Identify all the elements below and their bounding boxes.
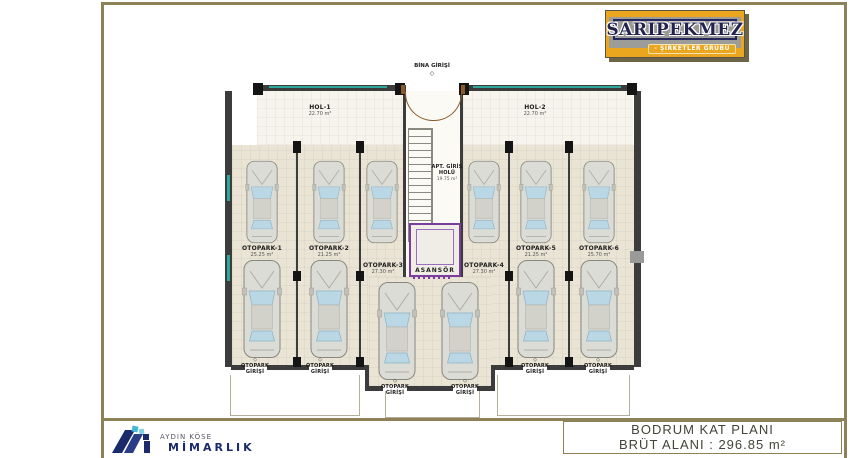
column [565, 141, 573, 153]
car [377, 281, 417, 381]
wall [403, 85, 406, 277]
hall-2-label: HOL-2 22.70 m² [524, 105, 547, 118]
wall [610, 365, 634, 370]
spot-area: 27.30 m² [363, 270, 403, 276]
column [293, 271, 301, 281]
floor-plan: BİNA GİRİŞİ ◇ HOL-1 22.70 m² HOL-2 22.70… [225, 55, 641, 417]
window-strip [473, 86, 621, 88]
parking-spot-label: OTOPARK-6 25.70 m² [579, 246, 619, 259]
parking-spot-label: OTOPARK-1 25.25 m² [242, 246, 282, 259]
window-strip [227, 255, 230, 281]
drawing-title-box: BODRUM KAT PLANI BRÜT ALANI : 296.85 m² [563, 421, 842, 454]
wall [634, 91, 641, 367]
entry-line: GİRİŞİ [451, 391, 479, 397]
elevator: ASANSÖR [409, 223, 461, 277]
column [253, 83, 263, 95]
drawing-title: BODRUM KAT PLANI [631, 423, 774, 438]
entry-line: GİRİŞİ [241, 370, 269, 376]
entry-line: GİRİŞİ [381, 391, 409, 397]
wall [225, 91, 232, 367]
driveway-left [230, 375, 360, 416]
wall [359, 145, 361, 365]
column [293, 357, 301, 367]
building-entrance-label: BİNA GİRİŞİ [414, 63, 450, 69]
driveway-right [497, 375, 630, 416]
spot-area: 25.25 m² [242, 253, 282, 259]
elevator-car [416, 229, 454, 265]
car [242, 160, 282, 244]
column [356, 141, 364, 153]
car [363, 160, 401, 244]
parking-spot-label: OTOPARK-4 27.30 m² [464, 263, 504, 276]
spot-area: 21.25 m² [516, 253, 556, 259]
hall-1-label: HOL-1 22.70 m² [309, 105, 332, 118]
car [242, 259, 282, 359]
architect-logo: AYDIN KÖSE MİMARLIK [110, 424, 255, 454]
column [565, 271, 573, 281]
parking-entry-label: ◇ OTOPARK GİRİŞİ [241, 358, 269, 375]
car [579, 259, 619, 359]
drawing-area: BRÜT ALANI : 296.85 m² [619, 438, 786, 453]
drawing-sheet: BİNA GİRİŞİ ◇ HOL-1 22.70 m² HOL-2 22.70… [0, 0, 850, 458]
parking-entry-label: ◇ OTOPARK GİRİŞİ [381, 379, 409, 396]
diamond-marker-icon: ◇ [430, 71, 435, 78]
hall-1-room [257, 91, 403, 145]
car [516, 259, 556, 359]
architect-title: MİMARLIK [168, 441, 255, 454]
room-area: 22.70 m² [309, 112, 332, 118]
window-strip [227, 175, 230, 201]
wall-stub [630, 251, 644, 263]
entry-line: GİRİŞİ [521, 370, 549, 376]
car [516, 160, 556, 244]
car [309, 160, 349, 244]
elevator-label: ASANSÖR [411, 267, 459, 274]
window-strip [269, 86, 387, 88]
column [505, 357, 513, 367]
architect-text: AYDIN KÖSE MİMARLIK [160, 433, 255, 454]
car [579, 160, 619, 244]
parking-spot-label: OTOPARK-2 21.25 m² [309, 246, 349, 259]
parking-entry-label: ◇ OTOPARK GİRİŞİ [521, 358, 549, 375]
wall [568, 145, 570, 365]
architect-name: AYDIN KÖSE [160, 433, 255, 441]
spot-area: 21.25 m² [309, 253, 349, 259]
hall-2-room [463, 91, 633, 145]
spot-area: 27.30 m² [464, 270, 504, 276]
brand-name: SARIPEKMEZ [606, 20, 743, 40]
room-area: 22.70 m² [524, 112, 547, 118]
company-logo: SARIPEKMEZ - ŞİRKETLER GRUBU [605, 10, 745, 58]
wall [508, 145, 510, 365]
car [309, 259, 349, 359]
wall [407, 386, 453, 391]
wall [267, 365, 309, 370]
entry-line: GİRİŞİ [306, 370, 334, 376]
architect-logo-icon [110, 424, 156, 454]
parking-entry-label: ◇ OTOPARK GİRİŞİ [306, 358, 334, 375]
logo-name-box: SARIPEKMEZ [613, 19, 737, 40]
entry-line: GİRİŞİ [584, 370, 612, 376]
column [505, 271, 513, 281]
dimension-line [413, 276, 453, 279]
wall [296, 145, 298, 365]
parking-spot-label: OTOPARK-3 27.30 m² [363, 263, 403, 276]
car [465, 160, 503, 244]
column [565, 357, 573, 367]
column [627, 83, 637, 95]
apartment-hall-label: APT. GİRİŞ HOLÜ 19.75 m² [431, 165, 462, 182]
spot-area: 25.70 m² [579, 253, 619, 259]
parking-entry-label: ◇ OTOPARK GİRİŞİ [584, 358, 612, 375]
column [293, 141, 301, 153]
column [356, 357, 364, 367]
brand-tagline: - ŞİRKETLER GRUBU [648, 44, 736, 54]
column [505, 141, 513, 153]
parking-entry-label: ◇ OTOPARK GİRİŞİ [451, 379, 479, 396]
parking-spot-label: OTOPARK-5 21.25 m² [516, 246, 556, 259]
room-area: 19.75 m² [431, 177, 462, 182]
car [440, 281, 480, 381]
